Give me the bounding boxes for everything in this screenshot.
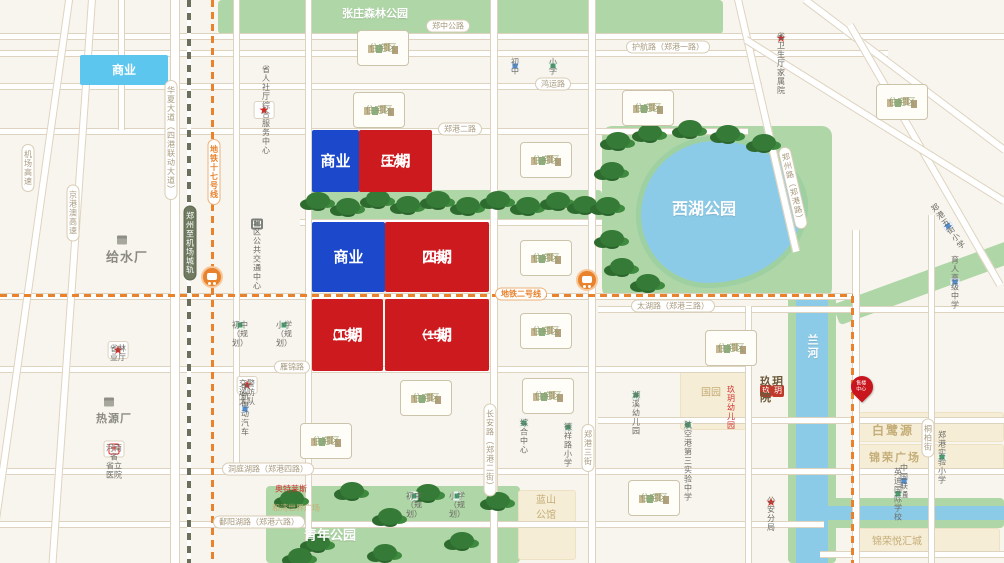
poi-label: 德祥路 小学	[564, 423, 573, 468]
tree-icon	[450, 532, 474, 549]
tree-icon	[366, 190, 390, 207]
poi: 德祥路 小学	[564, 423, 573, 432]
tree-icon	[486, 191, 510, 208]
area-label: 兰河	[804, 334, 820, 360]
area-label: 锦荣广场	[869, 449, 921, 465]
residential-label: 住宅区	[365, 105, 392, 115]
poi-label: 北区公共 交通中心	[251, 219, 263, 291]
poi-label: 公安分局	[766, 496, 777, 532]
residential-block: 住宅区	[522, 378, 574, 414]
road-label: 郑中公路	[426, 20, 470, 33]
poi: 初中	[511, 62, 520, 71]
project-block-二期: 二期（19#）	[312, 299, 383, 371]
project-block-number: （16#）	[415, 250, 459, 264]
poi: 综合中心	[520, 419, 529, 428]
road-label: 长安路（郑港二街）	[484, 404, 497, 497]
residential-label: 住宅区	[369, 43, 396, 53]
residential-block: 住宅区	[353, 92, 405, 128]
area-label: 锦荣悦汇城	[872, 533, 922, 548]
residential-block: 住宅区	[628, 480, 680, 516]
tree-icon	[516, 197, 540, 214]
project-block-number: （15#）	[415, 328, 459, 342]
road-label: 郑港二路	[438, 123, 482, 136]
area-label: 奥特莱斯	[275, 484, 307, 495]
location-map: 商业商业三期（17#）商业四期（16#）二期（19#）一期（15#）住宅区住宅区…	[0, 0, 1004, 563]
poi-label: 玖玥幼儿园	[727, 385, 735, 430]
road-label: 护航路（郑港一路）	[626, 41, 710, 54]
residential-block: 住宅区	[876, 84, 928, 120]
tree-icon	[546, 192, 570, 209]
residential-block: 住宅区	[400, 380, 452, 416]
tree-icon	[426, 191, 450, 208]
road-label: 鄱阳湖路（郑港六路）	[213, 516, 305, 529]
tree-icon	[600, 162, 624, 179]
water-area	[820, 506, 1004, 520]
road-label: 地铁二号线	[495, 288, 547, 301]
tree-icon	[573, 196, 597, 213]
poi-label: 玖玥院	[760, 373, 784, 405]
project-block-四期: 四期（16#）	[385, 222, 489, 292]
tree-icon	[456, 197, 480, 214]
poi: ★省卫生厅家属院	[776, 32, 787, 44]
poi: 玖玥玖玥院	[760, 380, 784, 398]
tree-icon	[606, 132, 630, 149]
map-pin-label: 售楼 中心	[850, 380, 872, 392]
tree-icon	[600, 230, 624, 247]
road	[928, 215, 935, 563]
road-label: 郑港三街	[582, 424, 595, 472]
area-label: 蓝山 公馆	[536, 491, 556, 521]
factory-icon	[117, 236, 127, 245]
poi-label: 初中	[511, 57, 520, 75]
tree-icon	[396, 196, 420, 213]
area-label: 西湖公园	[672, 195, 736, 219]
area-label: 给水厂	[106, 247, 148, 266]
project-block-商业: 商业	[80, 55, 168, 85]
road	[0, 521, 824, 528]
tree-icon	[610, 258, 634, 275]
poi-label: 小学	[549, 57, 558, 75]
residential-label: 住宅区	[640, 493, 667, 503]
poi: 初中（规划）	[236, 321, 245, 330]
road-label: 机场高速	[22, 144, 35, 192]
road	[820, 551, 1004, 558]
poi: 湖溪幼儿园	[632, 391, 641, 400]
factory-icon	[104, 398, 114, 407]
project-block-number: （19#）	[325, 328, 369, 342]
poi-label: 英迪国际学校	[894, 467, 903, 521]
tree-icon	[378, 508, 402, 525]
residential-label: 住宅区	[634, 103, 661, 113]
road-label: 桐柏街	[922, 419, 935, 458]
metro-station-icon	[576, 269, 598, 291]
road-label: 鸿运路	[535, 78, 571, 91]
poi: 郑港实 验小学	[938, 453, 947, 462]
project-block-label: 商业	[333, 249, 363, 266]
poi: 小学（规划）	[453, 492, 462, 501]
residential-block: 住宅区	[520, 313, 572, 349]
metro-line	[851, 296, 854, 563]
poi: 北区公共 交通中心	[251, 219, 263, 230]
tree-icon	[340, 482, 364, 499]
tree-icon	[636, 274, 660, 291]
residential-block: 住宅区	[520, 142, 572, 178]
residential-label: 住宅区	[534, 391, 561, 401]
poi-label: 中航电动汽车	[241, 382, 250, 436]
poi: ★省人社厅综合 服务中心	[254, 101, 275, 119]
park-area	[218, 0, 723, 34]
poi: 郑港五 街小学	[942, 220, 955, 233]
poi: 初中（规划）	[410, 492, 419, 501]
road-label: 洞庭湖路（郑港四路）	[222, 463, 314, 476]
project-block-label: 商业	[112, 62, 136, 79]
residential-block: 住宅区	[357, 30, 409, 66]
metro-line	[0, 294, 853, 297]
road	[598, 417, 1004, 424]
tree-icon	[678, 120, 702, 137]
road	[305, 0, 312, 563]
road-label: 郑州至机场城轨	[184, 206, 197, 281]
poi	[104, 398, 114, 407]
residential-block: 住宅区	[520, 240, 572, 276]
tree-icon	[306, 192, 330, 209]
tree-icon	[373, 544, 397, 561]
poi	[117, 236, 127, 245]
residential-label: 住宅区	[888, 97, 915, 107]
residential-label: 住宅区	[532, 326, 559, 336]
poi-label: 湖溪幼儿园	[632, 391, 641, 436]
metro-station-icon	[201, 266, 223, 288]
poi-label: 省卫生厅家属院	[776, 32, 787, 95]
project-block-一期: 一期（15#）	[385, 299, 489, 371]
poi: +河南省 省立医院	[104, 441, 125, 458]
area-label: 张庄森林公园	[342, 5, 408, 21]
poi-label: 育人高 级中学	[951, 255, 960, 309]
poi-label: 郑港实 验小学	[938, 430, 947, 484]
poi-label: 初中（规划）	[232, 321, 248, 348]
area-label: 白鹭源	[872, 422, 914, 439]
poi: 小学（规划）	[280, 321, 289, 330]
tree-icon	[336, 198, 360, 215]
residential-label: 住宅区	[412, 393, 439, 403]
project-block-商业: 商业	[312, 130, 359, 192]
project-block-三期: 三期（17#）	[359, 130, 432, 192]
residential-block: 住宅区	[622, 90, 674, 126]
area-label: 热源厂	[96, 410, 132, 426]
poi-label: 小学（规划）	[449, 492, 465, 519]
tree-icon	[716, 125, 740, 142]
road-label: 地铁十七号线	[208, 139, 221, 205]
poi: ★公安分局	[766, 496, 777, 508]
road-diagonal	[803, 0, 1004, 153]
tree-icon	[752, 134, 776, 151]
road-label: 华夏大道（四港联动大道）	[165, 80, 178, 200]
poi-label: 航空港 第三实验中学	[684, 421, 693, 502]
project-block-label: 商业	[320, 153, 350, 170]
tree-icon	[596, 197, 620, 214]
residential-block: 住宅区	[300, 423, 352, 459]
area-label: 国园	[701, 384, 721, 399]
poi-label: 省人社厅综合 服务中心	[259, 65, 274, 155]
project-block-number: （17#）	[373, 154, 417, 168]
residential-label: 住宅区	[532, 253, 559, 263]
poi-label: 初中（规划）	[406, 492, 422, 519]
poi: ★省林业厅	[108, 341, 129, 359]
project-block-商业: 商业	[312, 222, 385, 292]
area-label: 青年公园	[304, 525, 356, 544]
road-label: 太湖路（郑港三路）	[631, 300, 715, 313]
poi-label: 河南省 省立医院	[105, 444, 124, 480]
poi: 中航电动汽车	[241, 405, 250, 414]
area-label: 和湾世界广场	[272, 503, 320, 514]
tree-icon	[288, 548, 312, 563]
poi-label: 综合中心	[520, 419, 529, 455]
road-label: 雁锦路	[274, 361, 310, 374]
intercity-rail-line	[187, 0, 191, 563]
poi: 英迪国际学校	[894, 490, 903, 499]
residential-label: 住宅区	[717, 343, 744, 353]
residential-block: 住宅区	[705, 330, 757, 366]
tree-icon	[638, 124, 662, 141]
residential-label: 住宅区	[312, 436, 339, 446]
road-label: 京港澳高速	[67, 185, 80, 242]
residential-label: 住宅区	[532, 155, 559, 165]
poi: 育人高 级中学	[951, 278, 960, 287]
poi-label: 省林业厅	[109, 344, 128, 362]
poi: 小学	[549, 62, 558, 71]
poi: 航空港 第三实验中学	[684, 421, 693, 430]
poi-label: 小学（规划）	[276, 321, 292, 348]
